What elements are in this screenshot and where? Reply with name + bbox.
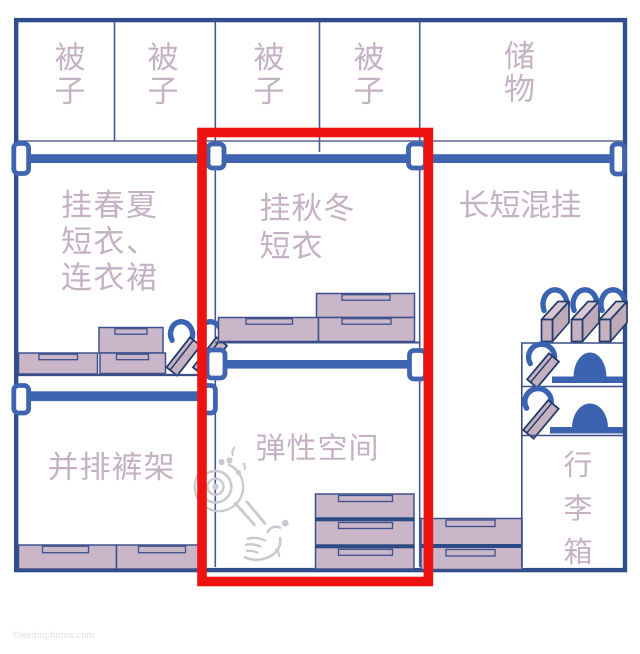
svg-text:©weibophotos.com: ©weibophotos.com — [13, 630, 94, 640]
